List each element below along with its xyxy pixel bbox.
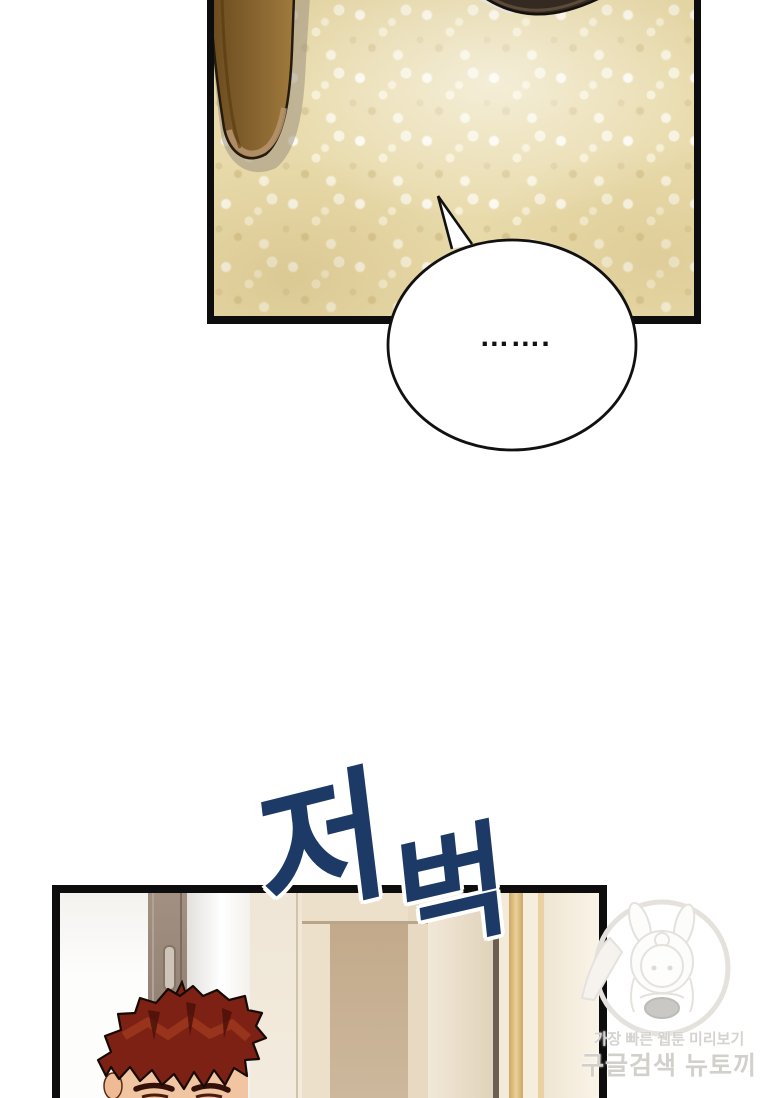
comic-page: ……. 저 벅 bbox=[0, 0, 760, 1098]
ellipsis-text: ……. bbox=[455, 322, 575, 352]
sfx-text-beok: 벅 bbox=[391, 815, 515, 965]
bunny-mascot-icon bbox=[578, 898, 760, 1048]
hallway-doorway bbox=[330, 923, 408, 1098]
watermark: 가장 빠른 웹툰 미리보기 구글검색 뉴토끼 bbox=[578, 898, 760, 1098]
dark-object bbox=[454, 0, 604, 42]
wall-strip-2 bbox=[523, 893, 538, 1098]
character-head bbox=[96, 980, 271, 1098]
sfx-text-jeo: 저 bbox=[251, 760, 395, 934]
watermark-line2: 구글검색 뉴토끼 bbox=[578, 1046, 760, 1082]
furniture-leg bbox=[214, 0, 334, 185]
